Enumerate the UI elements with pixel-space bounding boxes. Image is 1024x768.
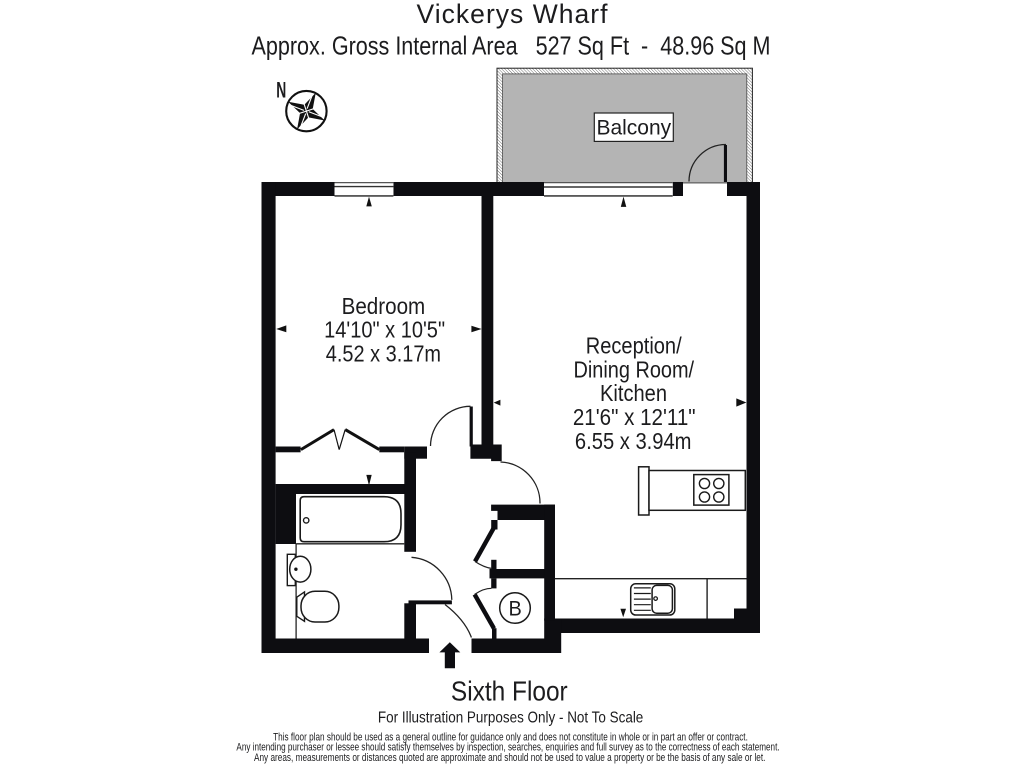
svg-text:14'10" x 10'5": 14'10" x 10'5" [324,316,445,343]
svg-text:6.55 x 3.94m: 6.55 x 3.94m [575,428,692,455]
svg-text:4.52 x 3.17m: 4.52 x 3.17m [326,341,441,367]
svg-text:Any areas, measurements or dis: Any areas, measurements or distances quo… [254,752,765,764]
svg-text:Reception/: Reception/ [586,332,682,359]
svg-text:For Illustration Purposes Only: For Illustration Purposes Only - Not To … [378,709,643,726]
svg-text:B: B [509,597,522,621]
svg-text:N: N [276,77,286,102]
svg-text:Vickerys Wharf: Vickerys Wharf [417,0,609,29]
svg-text:Kitchen: Kitchen [600,380,667,407]
svg-text:Sixth Floor: Sixth Floor [451,675,568,707]
svg-text:Balcony: Balcony [596,117,671,140]
svg-text:21'6" x 12'11": 21'6" x 12'11" [573,404,696,430]
svg-text:Dining Room/: Dining Room/ [574,357,695,383]
svg-text:Approx. Gross Internal Area: Approx. Gross Internal Area 527 Sq Ft - … [252,32,771,61]
